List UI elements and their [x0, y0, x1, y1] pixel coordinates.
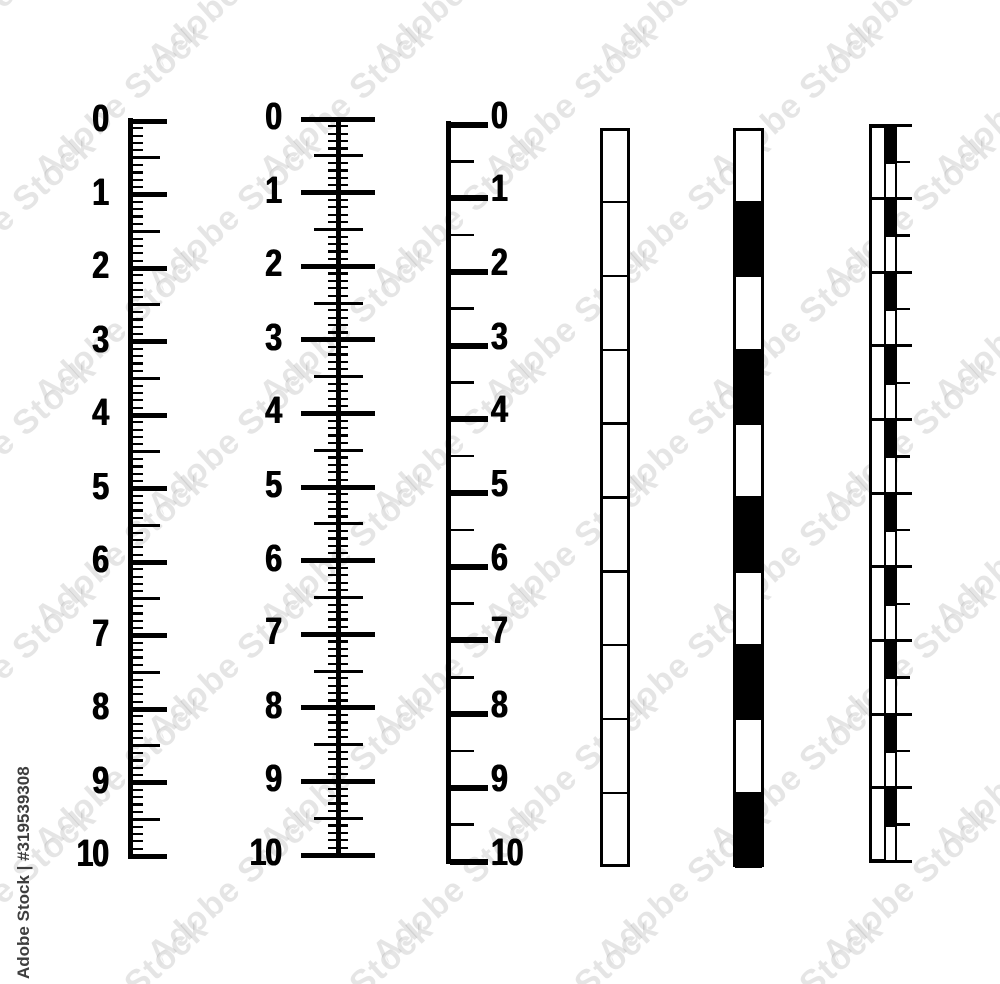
ruler2-scale-number: 7	[223, 613, 281, 651]
staff-e-unit-line	[869, 124, 912, 127]
staff-e-unit-line	[869, 418, 912, 421]
ruler2-mid-tick	[314, 670, 363, 673]
ruler2-minor-tick	[328, 346, 348, 348]
staff-e-unit-line	[869, 271, 912, 274]
ruler1-minor-tick	[133, 186, 143, 188]
watermark-tile: Adobe Stock	[702, 686, 891, 861]
ruler1-minor-tick	[133, 612, 143, 614]
staff-checker-divider	[735, 201, 762, 203]
ruler2-minor-tick	[328, 177, 348, 179]
ruler2-minor-tick	[328, 648, 348, 650]
ruler2-minor-tick	[328, 125, 348, 127]
ruler2-mid-tick	[314, 743, 363, 746]
staff-outline-divider	[602, 570, 629, 572]
ruler2-minor-tick	[328, 258, 348, 260]
ruler2-mid-tick	[314, 522, 363, 525]
watermark-tile: Adobe Stock	[252, 910, 441, 984]
ruler1-minor-tick	[133, 385, 143, 387]
ruler2-minor-tick	[328, 434, 348, 436]
ruler1-minor-tick	[133, 201, 143, 203]
ruler2-minor-tick	[328, 214, 348, 216]
ruler1-major-tick	[133, 339, 167, 344]
ruler2-minor-tick	[328, 250, 348, 252]
watermark-tile: Adobe Stock	[140, 798, 329, 973]
ruler1-mid-tick	[133, 818, 160, 821]
staff-checker-divider	[735, 422, 762, 424]
ruler2-minor-tick	[328, 582, 348, 584]
ruler2-minor-tick	[328, 456, 348, 458]
ruler1-minor-tick	[133, 605, 143, 607]
ruler2-minor-tick	[328, 471, 348, 473]
staff-checker-black-segment	[735, 645, 763, 720]
ruler2-minor-tick	[328, 640, 348, 642]
ruler1-minor-tick	[133, 686, 143, 688]
ruler2-minor-tick	[328, 147, 348, 149]
staff-e-black-half	[884, 420, 898, 457]
ruler1-scale-number: 7	[50, 615, 108, 653]
ruler3-scale-number: 3	[491, 318, 549, 356]
ruler2-minor-tick	[328, 383, 348, 385]
watermark-tile: Adobe Stock	[0, 0, 104, 77]
ruler2-scale-number: 10	[223, 834, 281, 872]
ruler1-minor-tick	[133, 568, 143, 570]
ruler3-major-tick	[450, 343, 488, 349]
ruler1-minor-tick	[133, 759, 143, 761]
ruler1-minor-tick	[133, 274, 143, 276]
watermark-tile: Adobe Stock	[702, 910, 891, 984]
ruler1-minor-tick	[133, 576, 143, 578]
ruler1-minor-tick	[133, 509, 143, 511]
ruler1-minor-tick	[133, 370, 143, 372]
ruler1-minor-tick	[133, 245, 143, 247]
watermark-tile: Adobe Stock	[590, 0, 779, 77]
ruler1-major-tick	[133, 560, 167, 565]
ruler1-minor-tick	[133, 142, 143, 144]
ruler1-scale-number: 8	[50, 688, 108, 726]
ruler1-minor-tick	[133, 693, 143, 695]
staff-outline-divider	[602, 644, 629, 646]
staff-checker-black-segment	[735, 202, 763, 277]
ruler1-minor-tick	[133, 407, 143, 409]
ruler3-mid-tick	[450, 455, 474, 458]
ruler1-minor-tick	[133, 546, 143, 548]
staff-outline-divider	[602, 718, 629, 720]
ruler2-minor-tick	[328, 427, 348, 429]
ruler2-minor-tick	[328, 729, 348, 731]
ruler1-minor-tick	[133, 399, 143, 401]
ruler3-mid-tick	[450, 823, 474, 826]
ruler2-minor-tick	[328, 832, 348, 834]
ruler1-major-tick	[133, 707, 167, 712]
ruler2-major-tick	[301, 558, 375, 563]
ruler1-minor-tick	[133, 495, 143, 497]
staff-e-black-half	[884, 125, 898, 162]
ruler2-minor-tick	[328, 464, 348, 466]
ruler1-minor-tick	[133, 215, 143, 217]
staff-checker-divider	[735, 570, 762, 572]
ruler2-mid-tick	[314, 817, 363, 820]
ruler1-minor-tick	[133, 730, 143, 732]
staff-e-half-tick	[886, 161, 910, 163]
ruler2-minor-tick	[328, 243, 348, 245]
ruler2-minor-tick	[328, 847, 348, 849]
ruler1-minor-tick	[133, 480, 143, 482]
ruler1-minor-tick	[133, 656, 143, 658]
ruler2-major-tick	[301, 485, 375, 490]
ruler1-minor-tick	[133, 833, 143, 835]
ruler2-minor-tick	[328, 758, 348, 760]
staff-e-unit-line	[869, 197, 912, 200]
ruler1-minor-tick	[133, 171, 143, 173]
ruler2-scale-number: 2	[223, 245, 281, 283]
ruler1-mid-tick	[133, 230, 160, 233]
ruler2-minor-tick	[328, 802, 348, 804]
ruler2-major-tick	[301, 117, 375, 122]
ruler2-minor-tick	[328, 655, 348, 657]
ruler2-minor-tick	[328, 420, 348, 422]
ruler2-minor-tick	[328, 353, 348, 355]
ruler2-minor-tick	[328, 184, 348, 186]
staff-outline-divider	[602, 792, 629, 794]
ruler1-minor-tick	[133, 289, 143, 291]
ruler2-major-tick	[301, 632, 375, 637]
ruler1-scale-number: 6	[50, 541, 108, 579]
ruler2-minor-tick	[328, 714, 348, 716]
ruler1-minor-tick	[133, 715, 143, 717]
ruler2-scale-number: 1	[223, 172, 281, 210]
ruler1-major-tick	[133, 486, 167, 491]
ruler2-minor-tick	[328, 567, 348, 569]
ruler1-minor-tick	[133, 627, 143, 629]
watermark-tile: Adobe Stock	[815, 350, 1000, 525]
staff-e-white-half	[884, 825, 898, 863]
ruler2-minor-tick	[328, 604, 348, 606]
ruler2-minor-tick	[328, 611, 348, 613]
ruler2-minor-tick	[328, 773, 348, 775]
ruler2-scale-number: 8	[223, 687, 281, 725]
ruler1-minor-tick	[133, 848, 143, 850]
staff-e-unit-line	[869, 639, 912, 642]
staff-e-white-half	[884, 235, 898, 273]
ruler1-minor-tick	[133, 664, 143, 666]
ruler1-minor-tick	[133, 458, 143, 460]
ruler3-scale-number: 2	[491, 244, 549, 282]
ruler1-minor-tick	[133, 135, 143, 137]
staff-outline-divider	[602, 496, 629, 498]
staff-e-unit-line	[869, 492, 912, 495]
ruler1-minor-tick	[133, 679, 143, 681]
ruler2-minor-tick	[328, 309, 348, 311]
staff-e-half-tick	[886, 676, 910, 678]
ruler1-minor-tick	[133, 532, 143, 534]
staff-e-half-tick	[886, 308, 910, 310]
ruler3-scale-number: 8	[491, 686, 549, 724]
staff-e-half-tick	[886, 529, 910, 531]
staff-e-half-tick	[886, 750, 910, 752]
staff-e-unit-line	[869, 344, 912, 347]
ruler1-mid-tick	[133, 303, 160, 306]
ruler1-minor-tick	[133, 355, 143, 357]
staff-e-black-half	[884, 272, 898, 309]
ruler2-minor-tick	[328, 442, 348, 444]
ruler2-mid-tick	[314, 375, 363, 378]
ruler2-scale-number: 5	[223, 466, 281, 504]
ruler3-mid-tick	[450, 602, 474, 605]
ruler1-major-tick	[133, 780, 167, 785]
ruler2-minor-tick	[328, 236, 348, 238]
ruler1-scale-number: 1	[50, 174, 108, 212]
ruler1-minor-tick	[133, 642, 143, 644]
staff-checker-divider	[735, 496, 762, 498]
staff-e-white-half	[884, 751, 898, 789]
ruler1-scale-number: 10	[50, 835, 108, 873]
ruler2-minor-tick	[328, 589, 348, 591]
ruler1-mid-tick	[133, 450, 160, 453]
watermark-tile: Adobe Stock	[927, 462, 1000, 637]
ruler2-minor-tick	[328, 280, 348, 282]
ruler2-minor-tick	[328, 824, 348, 826]
staff-e-white-half	[884, 162, 898, 200]
ruler2-minor-tick	[328, 206, 348, 208]
ruler1-minor-tick	[133, 318, 143, 320]
ruler1-minor-tick	[133, 149, 143, 151]
ruler1-major-tick	[133, 633, 167, 638]
staff-outline-divider	[602, 201, 629, 203]
ruler1-minor-tick	[133, 590, 143, 592]
ruler1-minor-tick	[133, 348, 143, 350]
ruler1-major-tick	[133, 854, 167, 859]
ruler1-minor-tick	[133, 208, 143, 210]
ruler1-mid-tick	[133, 671, 160, 674]
ruler3-major-tick	[450, 269, 488, 275]
ruler2-minor-tick	[328, 537, 348, 539]
ruler3-mid-tick	[450, 381, 474, 384]
ruler2-major-tick	[301, 853, 375, 858]
ruler1-minor-tick	[133, 436, 143, 438]
ruler1-minor-tick	[133, 311, 143, 313]
watermark-tile: Adobe Stock	[477, 910, 666, 984]
ruler2-minor-tick	[328, 133, 348, 135]
staff-checker-black-segment	[735, 498, 763, 573]
ruler1-major-tick	[133, 266, 167, 271]
ruler2-minor-tick	[328, 324, 348, 326]
ruler2-major-tick	[301, 337, 375, 342]
ruler3-major-tick	[450, 195, 488, 201]
ruler2-minor-tick	[328, 287, 348, 289]
ruler3-scale-number: 5	[491, 465, 549, 503]
ruler2-scale-number: 6	[223, 540, 281, 578]
staff-e-black-half	[884, 641, 898, 678]
ruler1-major-tick	[133, 413, 167, 418]
ruler2-mid-tick	[314, 228, 363, 231]
ruler2-scale-number: 3	[223, 319, 281, 357]
staff-e-white-half	[884, 604, 898, 642]
staff-e-black-half	[884, 493, 898, 530]
staff-outline-divider	[602, 349, 629, 351]
ruler2-minor-tick	[328, 618, 348, 620]
ruler2-mid-tick	[314, 302, 363, 305]
watermark-tile: Adobe Stock	[815, 0, 1000, 77]
measuring-scales-illustration: Adobe StockAdobe StockAdobe StockAdobe S…	[0, 0, 1000, 984]
ruler2-major-tick	[301, 779, 375, 784]
ruler1-mid-tick	[133, 377, 160, 380]
ruler2-minor-tick	[328, 530, 348, 532]
ruler1-minor-tick	[133, 164, 143, 166]
ruler1-minor-tick	[133, 803, 143, 805]
staff-e-white-half	[884, 677, 898, 715]
ruler3-mid-tick	[450, 307, 474, 310]
ruler2-mid-tick	[314, 449, 363, 452]
ruler1-minor-tick	[133, 811, 143, 813]
staff-e-white-half	[884, 309, 898, 347]
ruler1-scale-number: 9	[50, 762, 108, 800]
ruler2-minor-tick	[328, 721, 348, 723]
ruler1-minor-tick	[133, 796, 143, 798]
ruler1-minor-tick	[133, 238, 143, 240]
ruler1-scale-number: 4	[50, 394, 108, 432]
staff-e-black-half	[884, 567, 898, 604]
ruler1-minor-tick	[133, 539, 143, 541]
watermark-tile: Adobe Stock	[702, 238, 891, 413]
watermark-tile: Adobe Stock	[140, 0, 329, 77]
ruler3-major-tick	[450, 859, 488, 865]
watermark-tile: Adobe Stock	[927, 686, 1000, 861]
ruler3-major-tick	[450, 637, 488, 643]
ruler3-major-tick	[450, 416, 488, 422]
staff-e-white-half	[884, 530, 898, 568]
ruler2-minor-tick	[328, 368, 348, 370]
ruler1-minor-tick	[133, 333, 143, 335]
staff-e-half-tick	[886, 234, 910, 236]
ruler2-minor-tick	[328, 788, 348, 790]
ruler1-minor-tick	[133, 767, 143, 769]
ruler3-scale-number: 1	[491, 170, 549, 208]
ruler2-major-tick	[301, 190, 375, 195]
ruler1-minor-tick	[133, 502, 143, 504]
staff-e-unit-line	[869, 860, 912, 863]
ruler2-minor-tick	[328, 685, 348, 687]
staff-e-half-tick	[886, 603, 910, 605]
stock-id-watermark: Adobe Stock | #319539308	[14, 766, 34, 979]
ruler2-minor-tick	[328, 692, 348, 694]
ruler1-minor-tick	[133, 554, 143, 556]
ruler2-minor-tick	[328, 272, 348, 274]
ruler2-minor-tick	[328, 398, 348, 400]
watermark-tile: Adobe Stock	[702, 14, 891, 189]
ruler1-minor-tick	[133, 752, 143, 754]
ruler1-minor-tick	[133, 362, 143, 364]
ruler1-minor-tick	[133, 774, 143, 776]
ruler2-minor-tick	[328, 140, 348, 142]
ruler2-minor-tick	[328, 501, 348, 503]
ruler2-minor-tick	[328, 677, 348, 679]
ruler2-minor-tick	[328, 169, 348, 171]
ruler1-minor-tick	[133, 789, 143, 791]
ruler2-minor-tick	[328, 331, 348, 333]
ruler3-major-tick	[450, 785, 488, 791]
ruler3-mid-tick	[450, 750, 474, 753]
ruler2-scale-number: 4	[223, 392, 281, 430]
ruler1-minor-tick	[133, 296, 143, 298]
ruler2-scale-number: 0	[223, 98, 281, 136]
watermark-tile: Adobe Stock	[702, 462, 891, 637]
ruler2-minor-tick	[328, 515, 348, 517]
watermark-tile: Adobe Stock	[365, 0, 554, 77]
staff-checker-divider	[735, 644, 762, 646]
ruler1-minor-tick	[133, 127, 143, 129]
ruler2-major-tick	[301, 705, 375, 710]
ruler2-minor-tick	[328, 317, 348, 319]
staff-e-half-tick	[886, 382, 910, 384]
ruler1-minor-tick	[133, 826, 143, 828]
ruler1-major-tick	[133, 119, 167, 124]
staff-checker-divider	[735, 275, 762, 277]
ruler1-mid-tick	[133, 524, 160, 527]
ruler1-minor-tick	[133, 282, 143, 284]
ruler2-minor-tick	[328, 736, 348, 738]
ruler2-minor-tick	[328, 751, 348, 753]
ruler2-minor-tick	[328, 574, 348, 576]
ruler2-minor-tick	[328, 663, 348, 665]
ruler1-minor-tick	[133, 429, 143, 431]
ruler3-scale-number: 10	[491, 834, 549, 872]
staff-checker-black-segment	[735, 793, 763, 868]
ruler1-minor-tick	[133, 465, 143, 467]
watermark-tile: Adobe Stock	[815, 574, 1000, 749]
staff-e-white-half	[884, 456, 898, 494]
ruler3-scale-number: 9	[491, 760, 549, 798]
ruler3-major-tick	[450, 564, 488, 570]
ruler2-minor-tick	[328, 405, 348, 407]
ruler3-scale-number: 0	[491, 97, 549, 135]
ruler2-minor-tick	[328, 508, 348, 510]
ruler2-minor-tick	[328, 199, 348, 201]
ruler3-mid-tick	[450, 234, 474, 237]
ruler2-minor-tick	[328, 766, 348, 768]
ruler2-minor-tick	[328, 810, 348, 812]
staff-outline-divider	[602, 275, 629, 277]
ruler2-mid-tick	[314, 154, 363, 157]
ruler1-minor-tick	[133, 737, 143, 739]
ruler1-minor-tick	[133, 223, 143, 225]
ruler3-major-tick	[450, 711, 488, 717]
ruler2-minor-tick	[328, 390, 348, 392]
ruler1-scale-number: 5	[50, 468, 108, 506]
ruler2-minor-tick	[328, 221, 348, 223]
staff-e-unit-line	[869, 786, 912, 789]
ruler2-minor-tick	[328, 552, 348, 554]
ruler2-minor-tick	[328, 162, 348, 164]
ruler1-mid-tick	[133, 744, 160, 747]
ruler3-scale-number: 6	[491, 539, 549, 577]
staff-e-half-tick	[886, 455, 910, 457]
ruler1-minor-tick	[133, 840, 143, 842]
staff-e-half-tick	[886, 823, 910, 825]
ruler2-major-tick	[301, 264, 375, 269]
ruler1-minor-tick	[133, 473, 143, 475]
watermark-tile: Adobe Stock	[927, 910, 1000, 984]
ruler2-minor-tick	[328, 795, 348, 797]
ruler1-minor-tick	[133, 517, 143, 519]
staff-e-white-half	[884, 383, 898, 421]
staff-e-black-half	[884, 714, 898, 751]
ruler2-major-tick	[301, 411, 375, 416]
ruler1-minor-tick	[133, 392, 143, 394]
ruler1-minor-tick	[133, 326, 143, 328]
ruler1-minor-tick	[133, 701, 143, 703]
ruler2-minor-tick	[328, 493, 348, 495]
staff-outline-divider	[602, 422, 629, 424]
